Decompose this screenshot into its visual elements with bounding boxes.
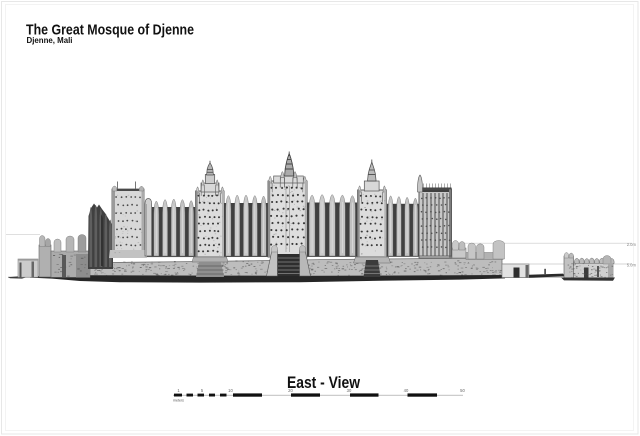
svg-text:5.0m: 5.0m <box>627 263 637 268</box>
svg-text:2.0m: 2.0m <box>627 242 637 247</box>
svg-text:40: 40 <box>404 388 409 393</box>
svg-text:1: 1 <box>177 388 180 393</box>
svg-text:10: 10 <box>228 388 233 393</box>
svg-text:30: 30 <box>347 388 352 393</box>
svg-text:Djenne, Mali: Djenne, Mali <box>27 36 73 45</box>
svg-text:meters: meters <box>173 398 184 402</box>
svg-text:50: 50 <box>460 388 465 393</box>
svg-text:5: 5 <box>201 388 204 393</box>
svg-text:20: 20 <box>288 388 293 393</box>
